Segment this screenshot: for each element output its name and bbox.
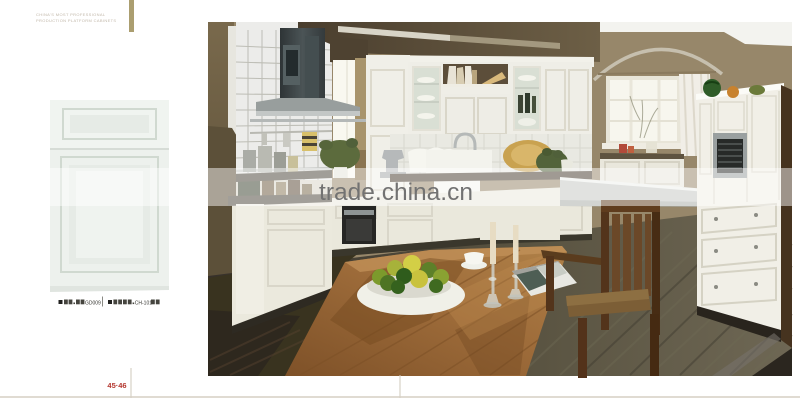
svg-text:PRODUCTION PLATFORM CABINETS: PRODUCTION PLATFORM CABINETS (36, 18, 116, 23)
svg-text:trade.china.cn: trade.china.cn (319, 179, 473, 206)
svg-text:CHINA'S MOST PROFESSIONAL: CHINA'S MOST PROFESSIONAL (36, 12, 106, 17)
svg-text:45·46: 45·46 (107, 381, 126, 390)
svg-text:GD009: GD009 (85, 300, 101, 306)
svg-text:CH-101: CH-101 (135, 300, 152, 306)
